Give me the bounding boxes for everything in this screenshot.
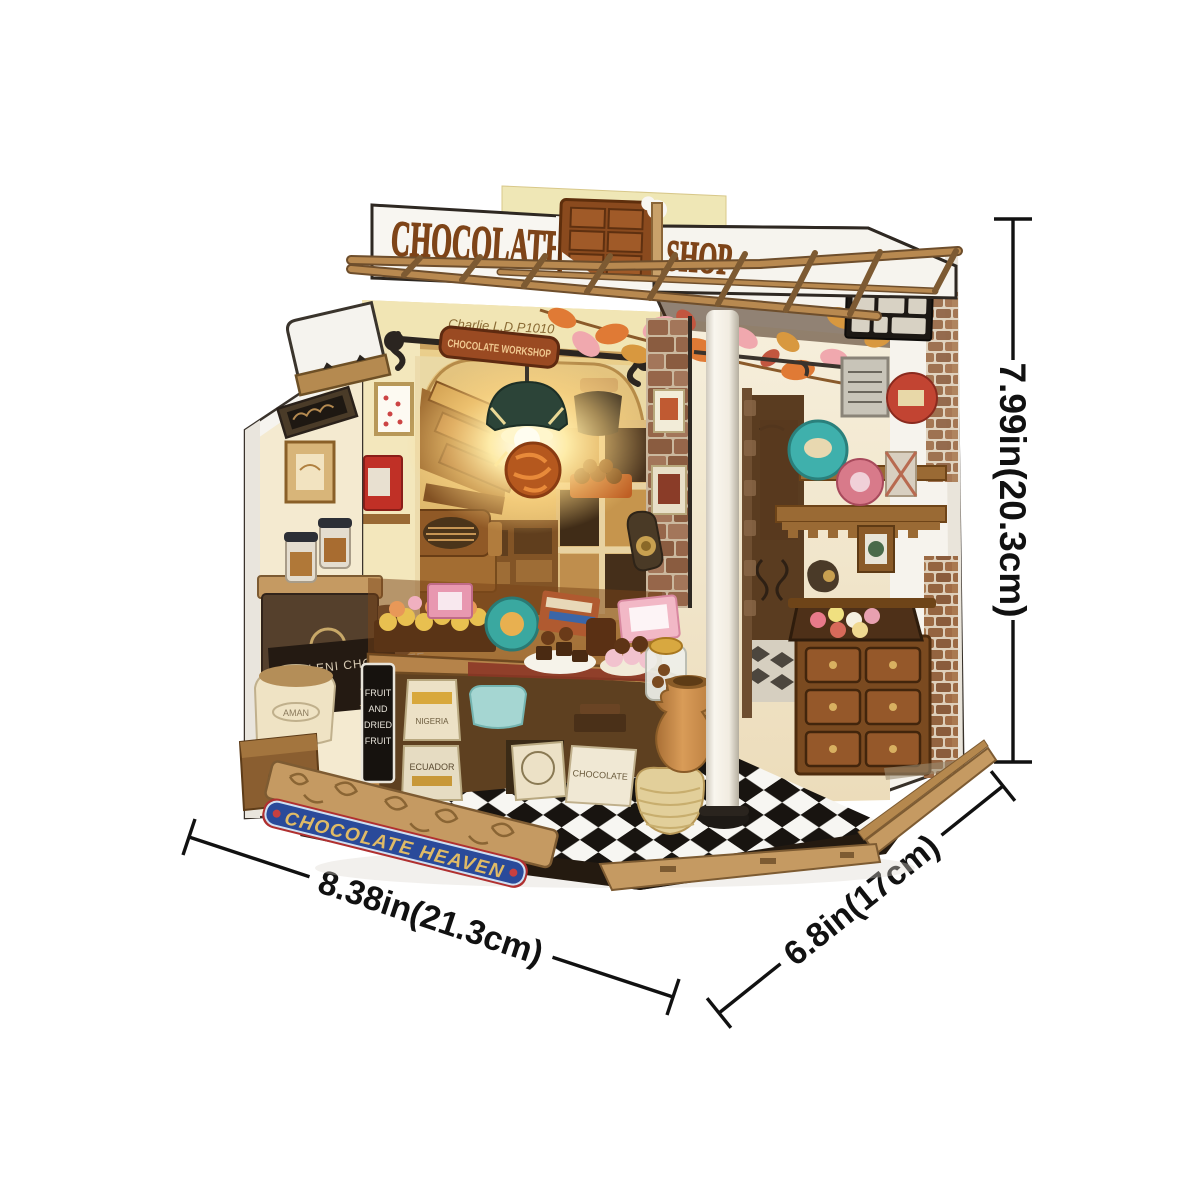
svg-text:FRUIT: FRUIT: [365, 688, 392, 698]
svg-text:7.99in(20.3cm): 7.99in(20.3cm): [992, 362, 1033, 617]
svg-text:FRUIT: FRUIT: [365, 736, 392, 746]
svg-text:AMAN: AMAN: [283, 708, 309, 718]
svg-text:ECUADOR: ECUADOR: [409, 762, 455, 772]
svg-text:AND: AND: [368, 704, 388, 714]
svg-text:NIGERIA: NIGERIA: [416, 717, 450, 726]
svg-text:DRIED: DRIED: [364, 720, 393, 730]
